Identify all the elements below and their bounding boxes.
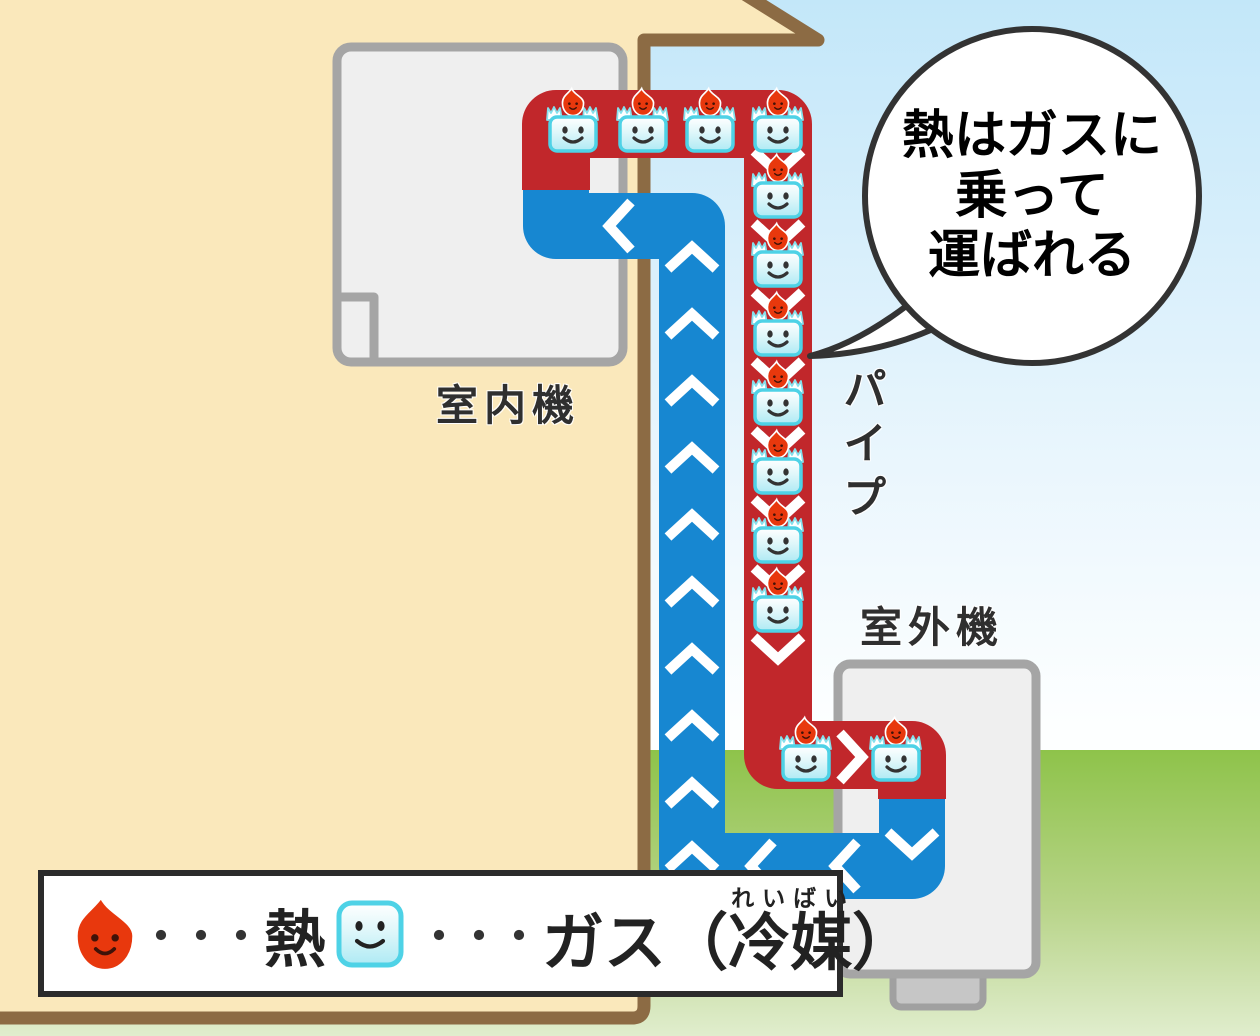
speech-bubble-line: 熱はガスに (902, 106, 1162, 166)
speech-bubble-line: 運ばれる (928, 226, 1136, 286)
speech-bubble-line: 乗って (955, 166, 1108, 226)
diagram-stage: 室内機 室外機 パイプ 熱はガスに 乗って 運ばれる ・・・ 熱 ・・・ ガス（… (0, 0, 1260, 1036)
speech-bubble: 熱はガスに 乗って 運ばれる (862, 26, 1202, 366)
